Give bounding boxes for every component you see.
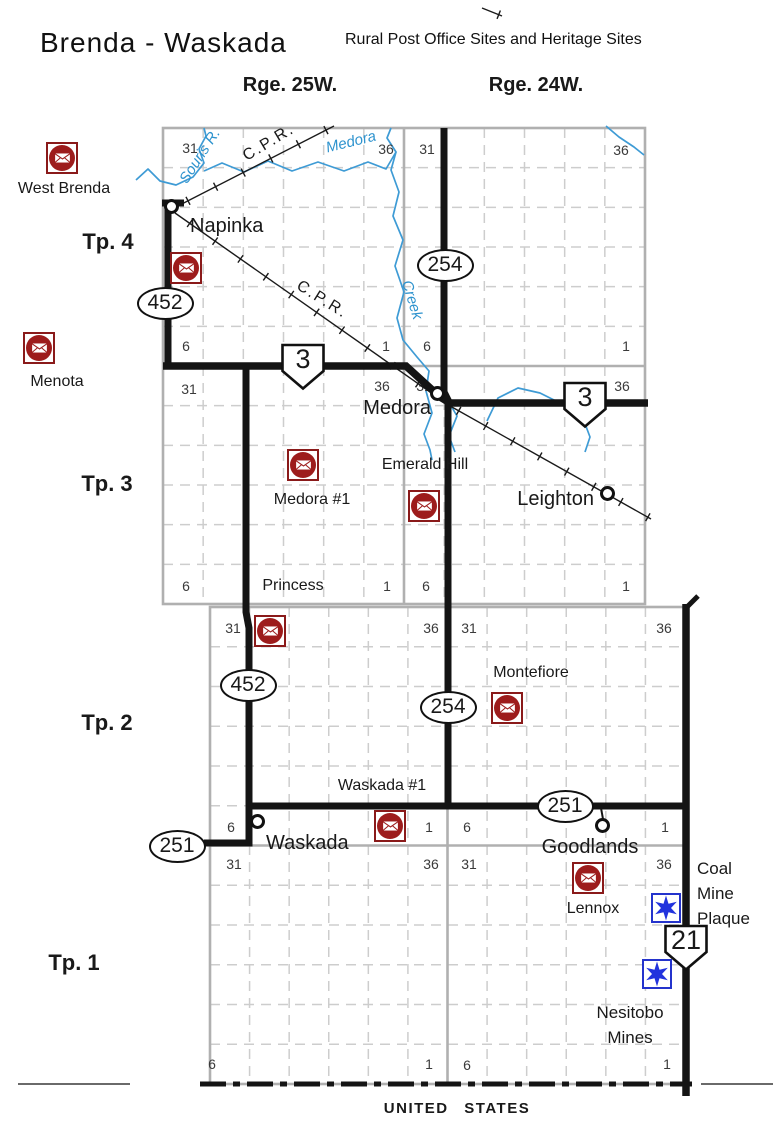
envelope-icon (499, 702, 516, 714)
township-label: Tp. 4 (82, 229, 133, 255)
town-marker-medora (430, 386, 445, 401)
town-marker-waskada (250, 814, 265, 829)
post-office-icon-west-brenda (46, 142, 78, 174)
railway-tick (619, 498, 623, 506)
section-number: 1 (622, 338, 630, 354)
post-office-circle (290, 452, 316, 478)
post-office-circle (377, 813, 403, 839)
post-office-icon-napinka-post-office (170, 252, 202, 284)
section-number: 6 (463, 1057, 471, 1073)
envelope-icon (178, 262, 195, 274)
township-label: Tp. 2 (81, 710, 132, 736)
town-label-napinka: Napinka (190, 215, 263, 238)
post-office-circle (26, 335, 52, 361)
post-office-icon-menota (23, 332, 55, 364)
section-number: 6 (423, 338, 431, 354)
section-number: 1 (622, 578, 630, 594)
railway-tick (538, 452, 542, 460)
section-number: 36 (656, 856, 672, 872)
township-label: Tp. 3 (81, 471, 132, 497)
section-number: 1 (382, 338, 390, 354)
town-label-goodlands: Goodlands (542, 836, 639, 859)
star-icon (653, 895, 679, 921)
heritage-label-nesitobo-mines: NesitoboMines (596, 1000, 663, 1050)
post-office-circle (575, 865, 601, 891)
post-office-label-waskada-1: Waskada #1 (338, 777, 426, 795)
envelope-icon (262, 625, 279, 637)
page-subtitle: Rural Post Office Sites and Heritage Sit… (345, 31, 642, 49)
united-states-label: UNITED STATES (384, 1100, 530, 1117)
post-office-circle (257, 618, 283, 644)
section-number: 6 (182, 338, 190, 354)
section-number: 1 (383, 578, 391, 594)
section-number: 31 (461, 856, 477, 872)
heritage-label-coal-mine-plaque: CoalMinePlaque (697, 856, 750, 931)
section-number: 1 (663, 1056, 671, 1072)
section-number: 31 (225, 620, 241, 636)
post-office-label-west-brenda: West Brenda (18, 180, 110, 198)
post-office-label-princess: Princess (262, 577, 323, 595)
highway-shield-3: 3 (280, 343, 326, 391)
post-office-icon-medora-1 (287, 449, 319, 481)
post-office-circle (173, 255, 199, 281)
highway-21-north-stub (686, 596, 698, 608)
highway-shield-3: 3 (562, 381, 608, 429)
highway-oval-452: 452 (137, 287, 194, 320)
highway-oval-251: 251 (149, 830, 206, 863)
post-office-label-lennox: Lennox (567, 900, 620, 918)
section-number: 1 (661, 819, 669, 835)
town-marker-goodlands (595, 818, 610, 833)
heritage-label-line: Coal (697, 856, 750, 881)
railway-tick (339, 327, 344, 334)
railway-tick (238, 255, 243, 262)
heritage-label-line: Mine (697, 881, 750, 906)
railway-tick (314, 309, 319, 316)
section-number: 31 (461, 620, 477, 636)
railway-tick (213, 237, 218, 244)
section-number: 6 (208, 1056, 216, 1072)
heritage-label-line: Nesitobo (596, 1000, 663, 1025)
town-marker-leighton (600, 486, 615, 501)
post-office-label-montefiore: Montefiore (493, 664, 569, 682)
page-title: Brenda - Waskada (40, 27, 287, 59)
railway-tick (511, 437, 515, 445)
envelope-icon (382, 820, 399, 832)
town-label-medora: Medora (363, 397, 431, 420)
range-label: Rge. 25W. (243, 74, 337, 97)
post-office-icon-montefiore (491, 692, 523, 724)
town-label-waskada: Waskada (266, 832, 349, 855)
highway-oval-452: 452 (220, 669, 277, 702)
section-number: 36 (378, 141, 394, 157)
highway-number: 3 (280, 344, 326, 375)
section-number: 6 (227, 819, 235, 835)
envelope-icon (416, 500, 433, 512)
section-number: 6 (422, 578, 430, 594)
section-number: 31 (181, 381, 197, 397)
post-office-icon-princess (254, 615, 286, 647)
post-office-label-emerald-hill: Emerald Hill (382, 456, 468, 474)
envelope-icon (580, 872, 597, 884)
section-number: 36 (374, 378, 390, 394)
section-number: 36 (613, 142, 629, 158)
envelope-icon (54, 152, 71, 164)
section-number: 36 (656, 620, 672, 636)
post-office-label-menota: Menota (30, 373, 83, 391)
railway-tick (263, 273, 268, 280)
section-number: 1 (425, 819, 433, 835)
highway-number: 3 (562, 382, 608, 413)
township-label: Tp. 1 (48, 950, 99, 976)
post-office-label-medora-1: Medora #1 (274, 491, 351, 509)
post-office-circle (411, 493, 437, 519)
section-number: 31 (419, 141, 435, 157)
heritage-star-coal-mine-plaque (651, 893, 681, 923)
section-number: 6 (463, 819, 471, 835)
section-number: 6 (182, 578, 190, 594)
section-number: 36 (614, 378, 630, 394)
section-number: 1 (425, 1056, 433, 1072)
section-number: 31 (226, 856, 242, 872)
town-marker-napinka (164, 199, 179, 214)
brenda-waskada-map: 3136313661613136313661613136313661613136… (0, 0, 781, 1124)
post-office-circle (494, 695, 520, 721)
section-number: 36 (423, 620, 439, 636)
section-number: 36 (423, 856, 439, 872)
highway-oval-251: 251 (537, 790, 594, 823)
post-office-icon-lennox (572, 862, 604, 894)
envelope-icon (295, 459, 312, 471)
highway-number: 21 (663, 925, 709, 956)
town-label-leighton: Leighton (517, 488, 594, 511)
heritage-label-line: Mines (596, 1025, 663, 1050)
highway-oval-254: 254 (417, 249, 474, 282)
post-office-circle (49, 145, 75, 171)
range-label: Rge. 24W. (489, 74, 583, 97)
post-office-icon-waskada-1 (374, 810, 406, 842)
railway-tick (365, 344, 370, 351)
envelope-icon (31, 342, 48, 354)
highway-shield-21: 21 (663, 924, 709, 972)
railway-tick (456, 407, 460, 415)
post-office-icon-emerald-hill (408, 490, 440, 522)
highway-oval-254: 254 (420, 691, 477, 724)
